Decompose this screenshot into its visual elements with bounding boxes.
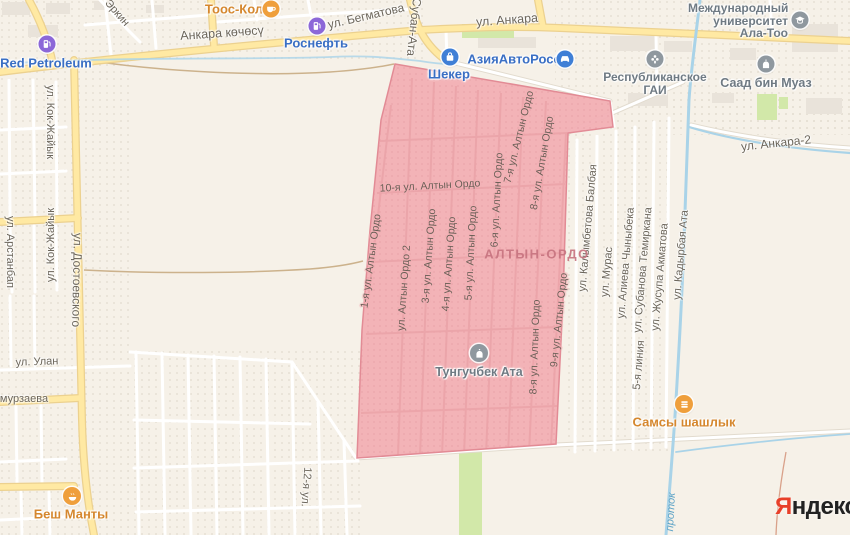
poi-gai-label-line1: Республиканское [603, 71, 706, 84]
food-icon[interactable] [675, 395, 693, 413]
street-label-murzaeva: мурзаева [0, 393, 48, 405]
map-canvas[interactable]: Эркин Анкара көчөсү ул. Бегматова Субан-… [0, 0, 850, 535]
poi-besh-manty-label[interactable]: Беш Манты [34, 507, 109, 522]
yandex-logo-ya: Я [775, 493, 792, 520]
car-icon[interactable] [557, 51, 574, 68]
mosque-icon[interactable] [470, 344, 488, 362]
cafe-icon[interactable] [263, 1, 280, 18]
poi-university-label[interactable]: Международный университет Ала-Тоо [688, 2, 788, 40]
poi-sheker-label[interactable]: Шекер [428, 67, 470, 82]
poi-gai-label-line2: ГАИ [603, 84, 706, 97]
poi-university-label-line1: Международный [688, 2, 788, 15]
yandex-logo-rest: ндекс [792, 493, 850, 520]
street-label-kok-zhaiyk-2: ул. Кок-Жайык [45, 208, 57, 282]
poi-saad-bin-muaz-label[interactable]: Саад бин Муаз [720, 76, 811, 90]
district-label: АЛТЫН-ОРДО [484, 247, 589, 262]
poi-toos-kol-label[interactable]: Тоос-Кол [205, 2, 263, 17]
poi-aziaavtoross-label[interactable]: АзияАвтоРосс [467, 52, 560, 67]
shop-icon[interactable] [442, 49, 459, 66]
poi-red-petroleum-label[interactable]: Red Petroleum [0, 56, 92, 71]
street-label-ulan: ул. Улан [15, 355, 58, 368]
poi-samsy-shashlyk-label[interactable]: Самсы шашлык [633, 415, 736, 430]
poi-tunguchbek-ata-label[interactable]: Тунгучбек Ата [435, 365, 522, 379]
fuel-icon[interactable] [309, 18, 326, 35]
food-icon[interactable] [63, 487, 81, 505]
poi-university-label-line3: Ала-Тоо [688, 27, 788, 40]
street-label-arstanbap: ул. Арстанбап [4, 216, 16, 288]
water-label: проток [664, 492, 678, 531]
yandex-logo[interactable]: Яндекс [775, 493, 850, 521]
street-label-dostoevskogo: ул. Достоевского [69, 233, 85, 327]
poi-rosneft-label[interactable]: Роснефть [284, 36, 348, 51]
poi-gai-label[interactable]: Республиканское ГАИ [603, 71, 706, 96]
traffic-light-icon[interactable] [647, 51, 664, 68]
mosque-icon[interactable] [758, 56, 775, 73]
fuel-icon[interactable] [39, 36, 56, 53]
street-label-kok-zhaiyk-1: ул. Кок-Жайык [44, 85, 56, 159]
university-icon[interactable] [792, 12, 809, 29]
